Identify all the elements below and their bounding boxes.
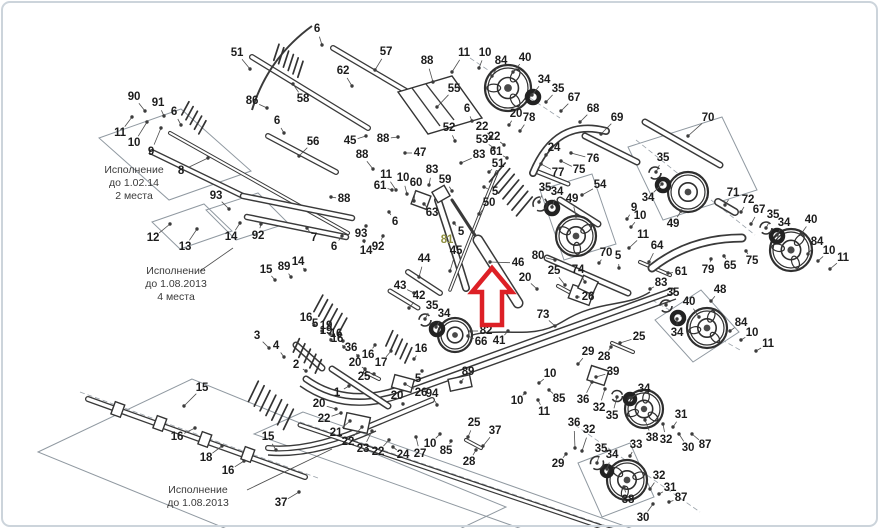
highlight-arrow [0,0,879,528]
parts-diagram: 9091611109886121393149251657881162585565… [0,0,879,528]
up-arrow-icon [472,268,512,325]
